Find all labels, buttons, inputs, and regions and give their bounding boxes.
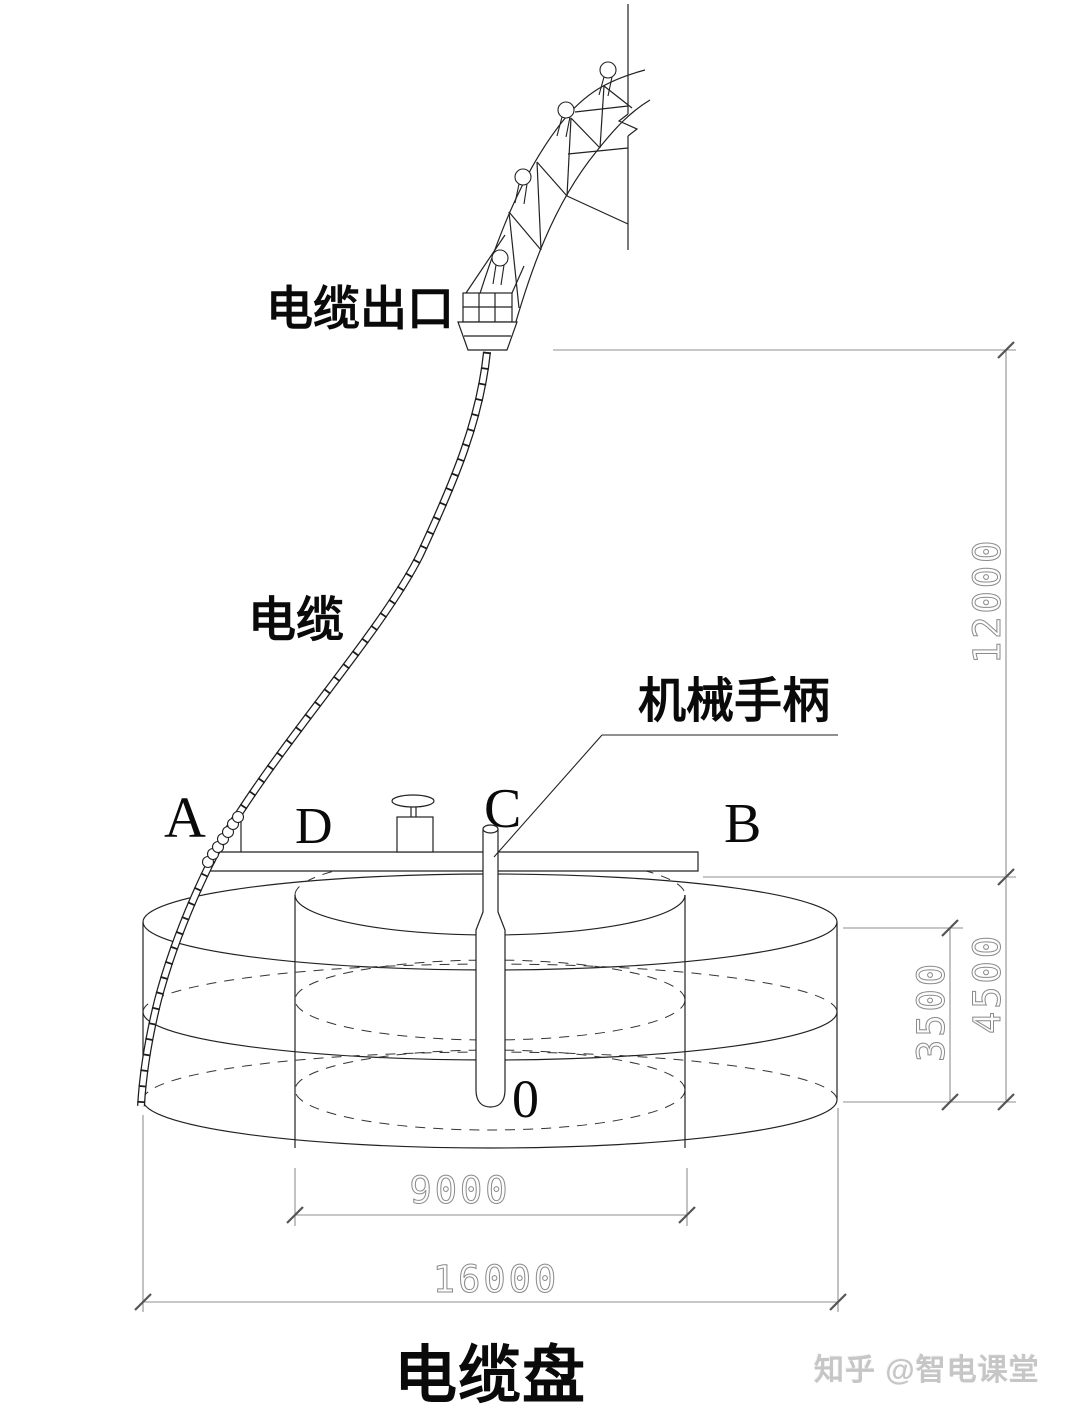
point-a-label: A xyxy=(164,789,206,847)
platform xyxy=(204,810,698,871)
cad-linework: 12000 4500 3500 9000 16000 xyxy=(0,0,1080,1422)
mechanical-handle-label: 机械手柄 xyxy=(638,678,830,726)
point-d-label: D xyxy=(295,801,333,853)
cable-reel-drawing: 12000 4500 3500 9000 16000 电缆出口 电缆 机械手柄 … xyxy=(0,0,1080,1422)
handle-leader-line xyxy=(494,735,838,857)
dim-12000: 12000 xyxy=(966,538,1009,664)
drawing-title: 电缆盘 xyxy=(394,1345,586,1408)
brake-box xyxy=(392,795,434,852)
cable-label: 电缆 xyxy=(248,597,344,645)
dim-4500: 4500 xyxy=(966,933,1009,1034)
dimension-lines xyxy=(143,350,1016,1312)
dimension-ticks xyxy=(135,342,1014,1310)
point-c-label: C xyxy=(484,781,521,837)
dim-3500: 3500 xyxy=(910,961,953,1062)
point-b-label: B xyxy=(724,796,761,852)
cable-outlet-label: 电缆出口 xyxy=(266,287,454,334)
dim-16000: 16000 xyxy=(433,1258,559,1301)
cable-run xyxy=(141,352,487,1106)
cable-outlet-head xyxy=(458,293,517,350)
watermark: 知乎 @智电课堂 xyxy=(814,1356,1040,1386)
pulley-circles xyxy=(492,62,616,285)
dim-9000: 9000 xyxy=(409,1169,510,1212)
point-o-label: 0 xyxy=(512,1072,539,1126)
